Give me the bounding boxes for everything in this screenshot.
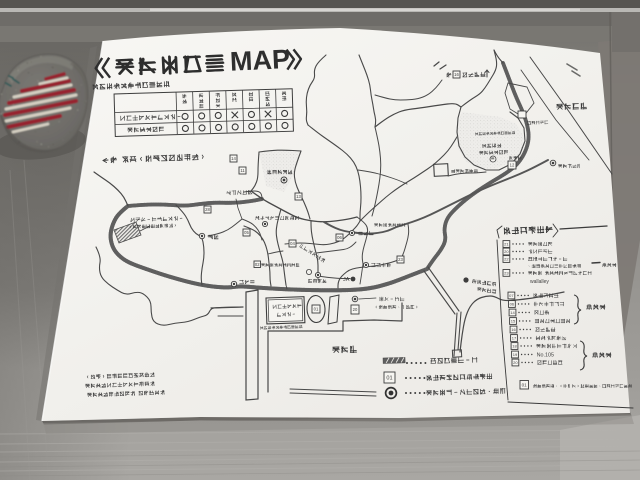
svg-text:12: 12 (510, 163, 515, 168)
svg-text:06: 06 (510, 301, 515, 306)
svg-text:MAP: MAP (229, 44, 290, 77)
svg-text:04: 04 (290, 241, 295, 246)
svg-text:23: 23 (504, 270, 509, 275)
svg-text:15: 15 (511, 318, 516, 323)
svg-text:05: 05 (244, 230, 249, 235)
svg-text:14: 14 (231, 156, 236, 161)
svg-text:18: 18 (512, 343, 517, 348)
svg-text:06: 06 (337, 235, 342, 240)
svg-text:28: 28 (205, 207, 210, 212)
svg-text:No.105: No.105 (537, 353, 554, 359)
svg-text:01: 01 (522, 382, 528, 387)
svg-text:17: 17 (512, 335, 517, 340)
svg-text:22: 22 (504, 256, 509, 261)
svg-text:19: 19 (513, 352, 518, 357)
svg-text:JA: JA (343, 277, 350, 283)
svg-text:wallalley: wallalley (530, 279, 549, 285)
svg-text:20: 20 (504, 249, 509, 254)
svg-text:02: 02 (255, 262, 260, 267)
svg-text:14: 14 (510, 310, 515, 315)
svg-text:16: 16 (511, 327, 516, 332)
svg-text:11: 11 (240, 168, 245, 173)
svg-text:20: 20 (513, 360, 518, 365)
svg-text:01: 01 (386, 376, 392, 382)
svg-text:16: 16 (454, 72, 459, 77)
svg-text:01: 01 (314, 307, 319, 312)
svg-text:13: 13 (296, 194, 301, 199)
svg-text:20: 20 (353, 307, 358, 312)
svg-text:23: 23 (398, 257, 403, 262)
svg-text:07: 07 (509, 293, 514, 298)
svg-text:21: 21 (504, 241, 509, 246)
